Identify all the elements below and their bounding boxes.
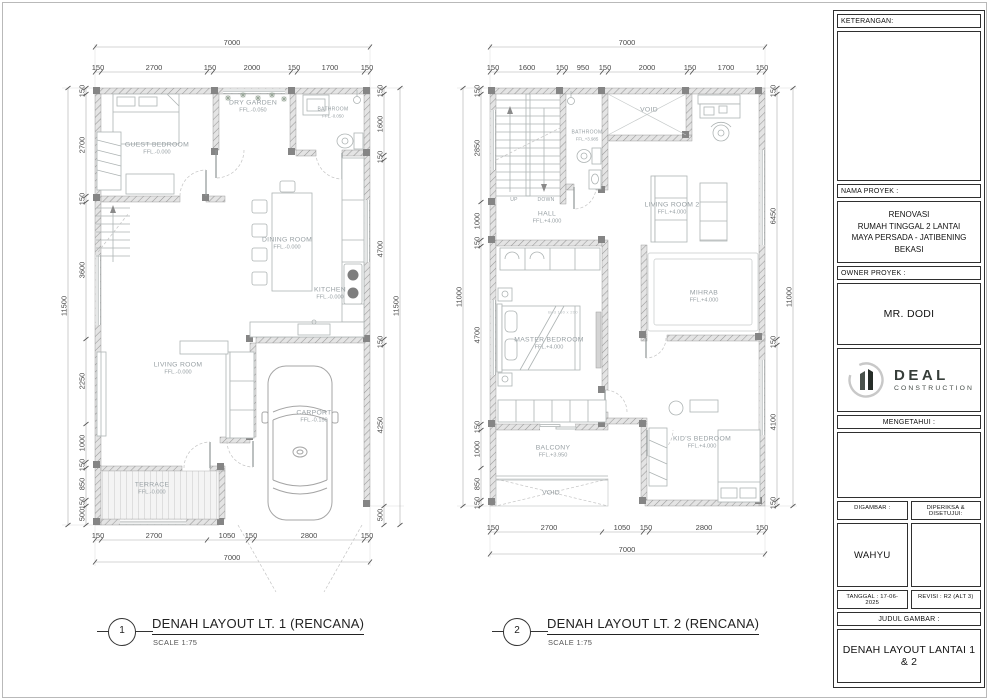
dim-label: 1600: [519, 63, 536, 72]
project-name-header: NAMA PROYEK :: [837, 184, 981, 198]
dim-label: 150: [78, 193, 87, 206]
logo-mark-icon: [844, 358, 888, 402]
dim-label: 11500: [392, 296, 401, 316]
dim-label: 150: [756, 63, 769, 72]
dim-label: 150: [78, 459, 87, 472]
project-name-line: MAYA PERSADA - JATIBENING: [852, 232, 967, 244]
dim-label: 150: [487, 523, 500, 532]
plan2-group: [457, 44, 797, 558]
dim-label: 150: [376, 85, 385, 98]
dim-label: 1600: [376, 116, 385, 133]
mengetahui-header: MENGETAHUI :: [837, 415, 981, 429]
room-label: BATHROOMFFL.+3.985: [572, 129, 603, 141]
dim-label: 4700: [473, 327, 482, 344]
digambar-box: WAHYU: [837, 523, 908, 587]
dim-label: 150: [599, 63, 612, 72]
dim-label: 150: [92, 63, 105, 72]
room-label: Bed 180 x 200: [548, 310, 578, 315]
dim-label: 2700: [146, 531, 163, 540]
dim-label: 2000: [244, 63, 261, 72]
dim-label: 150: [92, 531, 105, 540]
dim-label: 3600: [78, 262, 87, 279]
room-label: GUEST BEDROOMFFL.-0.000: [125, 141, 189, 155]
room-label: VOID: [640, 107, 658, 114]
kids-bed-icon: [649, 400, 760, 502]
dim-label: 1050: [219, 531, 236, 540]
dim-label: 2700: [78, 137, 87, 154]
dim-label: 150: [288, 63, 301, 72]
logo-name: DEAL: [894, 368, 974, 383]
dim-label: 150: [640, 523, 653, 532]
judul-header: JUDUL GAMBAR :: [837, 612, 981, 626]
room-label: MIHRABFFL.+4.000: [690, 289, 719, 303]
title-block: KETERANGAN: NAMA PROYEK : RENOVASI RUMAH…: [833, 10, 985, 688]
room-label: MASTER BEDROOMFFL.+4.000: [514, 336, 584, 350]
digambar-header: DIGAMBAR :: [837, 501, 908, 520]
dim-label: 150: [684, 63, 697, 72]
dim-label: 6450: [769, 208, 778, 225]
sofa-icon: [97, 341, 254, 438]
dim-label: 1700: [322, 63, 339, 72]
room-label: TERRACEFFL.-0.000: [135, 481, 170, 495]
plan1-scale: SCALE 1:75: [153, 638, 197, 647]
dim-label: 7000: [619, 545, 636, 554]
plan1-caption: 1 DENAH LAYOUT LT. 1 (RENCANA) SCALE 1:7…: [95, 614, 375, 660]
guest-desk: [126, 174, 174, 194]
dim-label: 4700: [376, 241, 385, 258]
revisi-field: REVISI : R2 (ALT 3): [911, 590, 982, 609]
dim-label: 2250: [78, 373, 87, 390]
dim-label: 150: [361, 531, 374, 540]
dim-label: 2800: [696, 523, 713, 532]
room-label: KID'S BEDROOMFFL.+4.000: [673, 435, 731, 449]
owner-box: MR. DODI: [837, 283, 981, 345]
room-label: CARPORTFFL.-0.150: [296, 409, 331, 423]
master-bed-icon: [497, 248, 601, 386]
dim-label: 850: [78, 478, 87, 491]
mengetahui-box: [837, 432, 981, 498]
keterangan-header: KETERANGAN:: [837, 14, 981, 28]
balcony-cabinet: [496, 400, 608, 480]
dim-label: 2700: [146, 63, 163, 72]
dim-label: 7000: [224, 553, 241, 562]
logo-subtitle: CONSTRUCTION: [894, 385, 974, 392]
dim-label: 1000: [78, 435, 87, 452]
room-label: BALCONYFFL.+3.950: [536, 444, 571, 458]
plan2-scale: SCALE 1:75: [548, 638, 592, 647]
terrace-deck: [101, 471, 219, 519]
plan1-number-badge: 1: [108, 618, 136, 646]
project-name-box: RENOVASI RUMAH TINGGAL 2 LANTAI MAYA PER…: [837, 201, 981, 263]
tanggal-field: TANGGAL : 17-06-2025: [837, 590, 908, 609]
dim-label: 11000: [785, 287, 794, 307]
dim-label: 150: [245, 531, 258, 540]
bathroom1-fixtures: [303, 90, 363, 149]
dim-label: 150: [376, 336, 385, 349]
dim-label: 150: [473, 237, 482, 250]
room-label: BATHROOMFFL.-0.050: [318, 106, 349, 118]
dim-label: 150: [769, 497, 778, 510]
judul-box: DENAH LAYOUT LANTAI 1 & 2: [837, 629, 981, 683]
dim-label: 2700: [541, 523, 558, 532]
room-label: LIVING ROOM 2FFL.+4.000: [645, 201, 700, 215]
dim-label: 7000: [224, 38, 241, 47]
owner-header: OWNER PROYEK :: [837, 266, 981, 280]
dim-label: 1000: [473, 441, 482, 458]
dim-label: 2850: [473, 140, 482, 157]
room-label: DRY GARDENFFL.-0.050: [229, 99, 277, 113]
guest-bed-icon: [113, 94, 179, 144]
plan1-title: DENAH LAYOUT LT. 1 (RENCANA): [152, 616, 364, 635]
dim-label: 11000: [455, 287, 464, 307]
room-label: VOID: [542, 490, 560, 497]
dim-label: 1000: [473, 213, 482, 230]
wardrobe-icon: [97, 132, 121, 190]
dim-label: 11500: [60, 296, 69, 316]
dim-label: 1700: [718, 63, 735, 72]
project-name-line: BEKASI: [895, 244, 924, 256]
room-label: HALLFFL.+4.000: [533, 210, 562, 224]
dim-label: 150: [756, 523, 769, 532]
dim-label: 150: [78, 497, 87, 510]
dim-label: 2800: [301, 531, 318, 540]
dim-label: 500: [376, 509, 385, 522]
dim-label: 4100: [769, 414, 778, 431]
car-icon: [262, 366, 338, 520]
dim-label: 4250: [376, 417, 385, 434]
room-label: DINING ROOMFFL.-0.000: [262, 236, 312, 250]
room-label: KITCHENFFL.-0.000: [314, 286, 346, 300]
plan2-caption: 2 DENAH LAYOUT LT. 2 (RENCANA) SCALE 1:7…: [490, 614, 770, 660]
dim-label: 7000: [619, 38, 636, 47]
plan1-group: [62, 44, 404, 592]
dim-label: 150: [473, 85, 482, 98]
dim-label: 2000: [639, 63, 656, 72]
plan2-windows: [491, 110, 765, 435]
diperiksa-header: DIPERIKSA & DISETUJUI:: [911, 501, 982, 520]
dim-label: 950: [577, 63, 590, 72]
dim-label: 150: [78, 85, 87, 98]
dim-label: 150: [769, 336, 778, 349]
dim-label: 150: [361, 63, 374, 72]
dim-label: 150: [204, 63, 217, 72]
room-label: LIVING ROOMFFL.-0.000: [154, 361, 203, 375]
plan2-title: DENAH LAYOUT LT. 2 (RENCANA): [547, 616, 759, 635]
room-label: DOWN: [537, 197, 554, 203]
dim-label: 150: [376, 151, 385, 164]
dim-label: 850: [473, 478, 482, 491]
plan2-number-badge: 2: [503, 618, 531, 646]
stairs2-icon: [496, 94, 560, 196]
dim-label: 150: [556, 63, 569, 72]
dim-label: 150: [487, 63, 500, 72]
diperiksa-box: [911, 523, 982, 587]
keterangan-box: [837, 31, 981, 181]
room-label: UP: [510, 197, 518, 203]
dim-label: 1050: [614, 523, 631, 532]
dim-label: 150: [473, 421, 482, 434]
void-top-cross: [608, 94, 686, 135]
project-name-line: RUMAH TINGGAL 2 LANTAI: [858, 221, 961, 233]
company-logo: DEAL CONSTRUCTION: [837, 348, 981, 412]
project-name-line: RENOVASI: [889, 209, 930, 221]
drawing-sheet: 7000150270015020001501700150150270010501…: [0, 0, 989, 700]
dim-label: 500: [78, 509, 87, 522]
dim-label: 150: [473, 497, 482, 510]
dim-label: 150: [769, 85, 778, 98]
desk-icon: [698, 95, 740, 141]
